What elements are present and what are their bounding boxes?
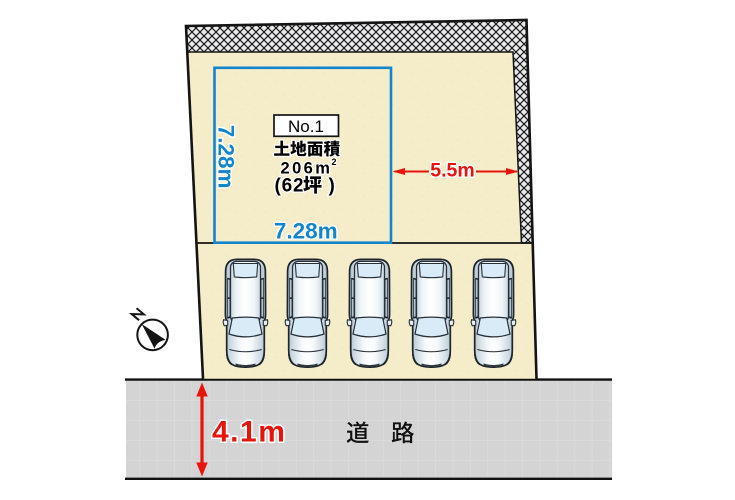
svg-text:4.1m: 4.1m xyxy=(212,415,286,448)
svg-text:(62: (62 xyxy=(275,176,305,197)
svg-text:7.28m: 7.28m xyxy=(214,125,239,189)
svg-text:No.1: No.1 xyxy=(288,117,324,136)
svg-text:7.28m: 7.28m xyxy=(274,218,338,243)
svg-text:2: 2 xyxy=(332,157,337,167)
svg-text:): ) xyxy=(329,176,335,197)
svg-text:5.5m: 5.5m xyxy=(430,159,474,181)
